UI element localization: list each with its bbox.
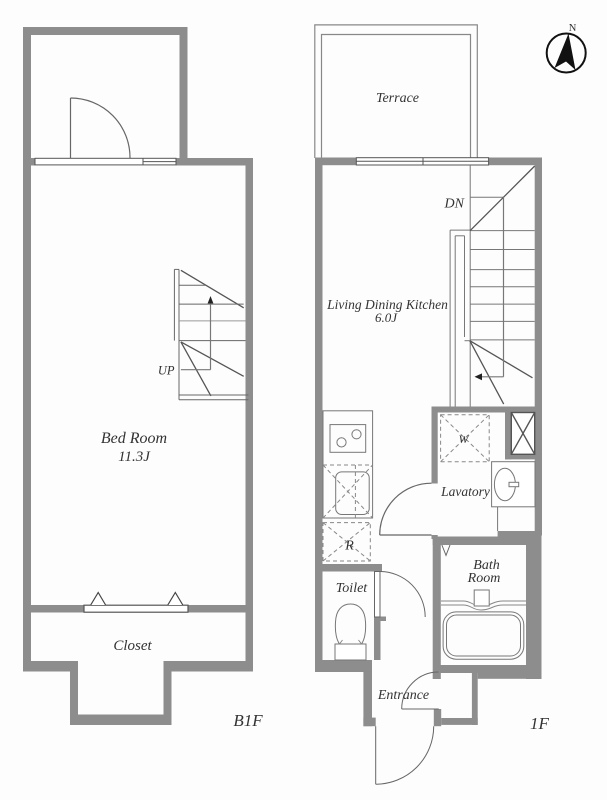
svg-text:UP: UP (158, 364, 175, 378)
svg-text:Toilet: Toilet (336, 581, 368, 596)
svg-text:Room: Room (467, 571, 501, 586)
svg-text:Entrance: Entrance (377, 688, 429, 703)
svg-text:B1F: B1F (233, 711, 263, 730)
svg-text:DN: DN (444, 197, 465, 212)
svg-text:Bed Room: Bed Room (101, 430, 167, 447)
svg-text:Terrace: Terrace (376, 91, 419, 106)
svg-text:1F: 1F (530, 714, 550, 733)
svg-text:Closet: Closet (113, 638, 152, 654)
svg-text:W: W (459, 432, 470, 446)
svg-text:R: R (344, 539, 354, 554)
svg-text:11.3J: 11.3J (118, 449, 151, 465)
svg-text:6.0J: 6.0J (375, 310, 398, 325)
svg-text:N: N (569, 23, 577, 34)
svg-text:Lavatory: Lavatory (440, 484, 490, 499)
